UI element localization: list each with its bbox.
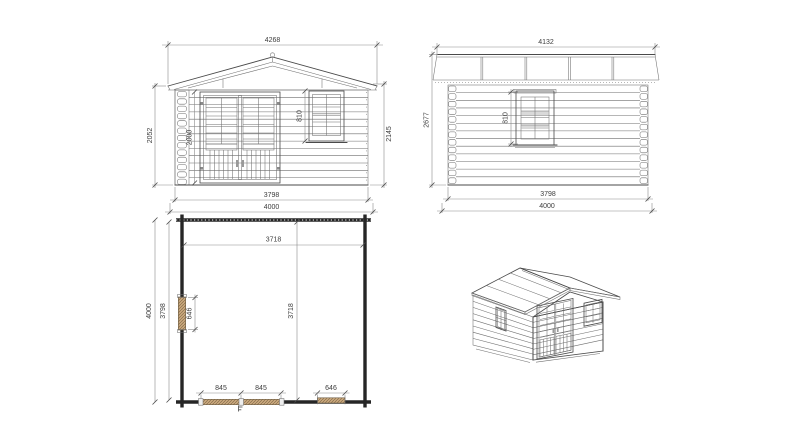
- door-right-leaf: [243, 98, 274, 179]
- iso-front-window: [584, 299, 602, 326]
- iso-roof: [472, 268, 620, 315]
- isometric-view: [450, 245, 695, 423]
- front-double-door: [200, 92, 280, 183]
- dim-label-total-height: 2677: [424, 112, 431, 128]
- hinge: [277, 102, 280, 105]
- door-left-leaf: [206, 98, 237, 179]
- door-planks: [210, 150, 233, 179]
- side-bottom-dimensions: 3798 4000: [437, 187, 657, 214]
- floor-plan-view: 3718 3718 3798 4000: [145, 208, 395, 423]
- side-elevation-view: 4132: [425, 25, 689, 217]
- front-left-height-dimension: 2052: [147, 83, 173, 188]
- door-handle: [236, 160, 238, 167]
- dim-label-base-depth: 4000: [539, 203, 555, 210]
- roof-rafters: [481, 57, 614, 80]
- dim-label-height-right: 2145: [386, 126, 393, 142]
- plan-side-window-dimension: 646: [187, 295, 199, 333]
- plan-interior-width-dimension: 3718: [182, 237, 366, 248]
- front-gable-roof: [168, 53, 377, 90]
- hinge: [277, 167, 280, 170]
- door-handle: [242, 160, 244, 167]
- dim-label-door-height: 2000: [187, 130, 194, 146]
- corner-log-ends: [178, 92, 187, 185]
- plan-door-openings: [199, 399, 285, 412]
- log-course-lines: [189, 97, 368, 177]
- front-elevation-view: 4268: [148, 22, 412, 214]
- dim-label-wall-depth: 3798: [540, 191, 556, 198]
- dim-label-inner-depth: 3798: [160, 303, 167, 319]
- plan-bottom-dimensions: 845 845 646: [196, 385, 350, 399]
- front-window-height-dimension: 810: [297, 89, 308, 144]
- corner-log-ends-right: [640, 86, 648, 183]
- dim-label-wall-width: 3798: [264, 192, 280, 199]
- plan-front-window: [318, 397, 346, 404]
- technical-drawing-sheet: 4268: [0, 0, 794, 446]
- iso-foundation: [476, 349, 600, 363]
- dim-label-door-leaf-right: 845: [255, 385, 267, 392]
- corner-log-ends-left: [449, 86, 457, 183]
- dim-label-window-height: 810: [503, 112, 510, 124]
- dim-label-outer-depth: 4000: [146, 303, 153, 319]
- door-planks: [247, 150, 270, 179]
- dim-label-interior-depth: 3718: [288, 303, 295, 319]
- door-swing-mark: [239, 406, 243, 412]
- dim-label-roof-width: 4268: [265, 37, 281, 44]
- plan-left-dimensions: 3798 4000: [146, 218, 172, 405]
- side-total-height-dimension: 2677: [424, 52, 447, 189]
- side-roof-plane: [433, 55, 659, 83]
- side-roof-width-dimension: 4132: [432, 39, 660, 54]
- dim-label-roof-width: 4132: [538, 39, 554, 46]
- dim-label-front-window: 646: [325, 385, 337, 392]
- door-handle: [557, 328, 559, 332]
- dim-label-wall-height: 2052: [147, 128, 154, 144]
- dim-label-door-leaf-left: 845: [215, 385, 227, 392]
- dim-label-window-height: 810: [297, 110, 304, 122]
- log-course-lines: [456, 93, 640, 177]
- side-log-wall: [448, 85, 648, 185]
- hinge: [201, 167, 204, 170]
- door-height-dimension: 2000: [187, 90, 198, 186]
- hinge: [201, 102, 204, 105]
- front-window: [306, 91, 347, 143]
- iso-roof-boards: [486, 273, 561, 305]
- door-mullion: [239, 96, 242, 180]
- plan-interior-depth-dimension: 3718: [288, 220, 300, 403]
- dim-label-interior-width: 3718: [266, 237, 282, 244]
- door-handle: [553, 329, 555, 333]
- dim-label-side-window: 646: [187, 308, 194, 320]
- front-right-height-dimension: 2145: [370, 81, 393, 188]
- front-log-wall: [175, 90, 368, 185]
- plan-side-window: [178, 295, 187, 333]
